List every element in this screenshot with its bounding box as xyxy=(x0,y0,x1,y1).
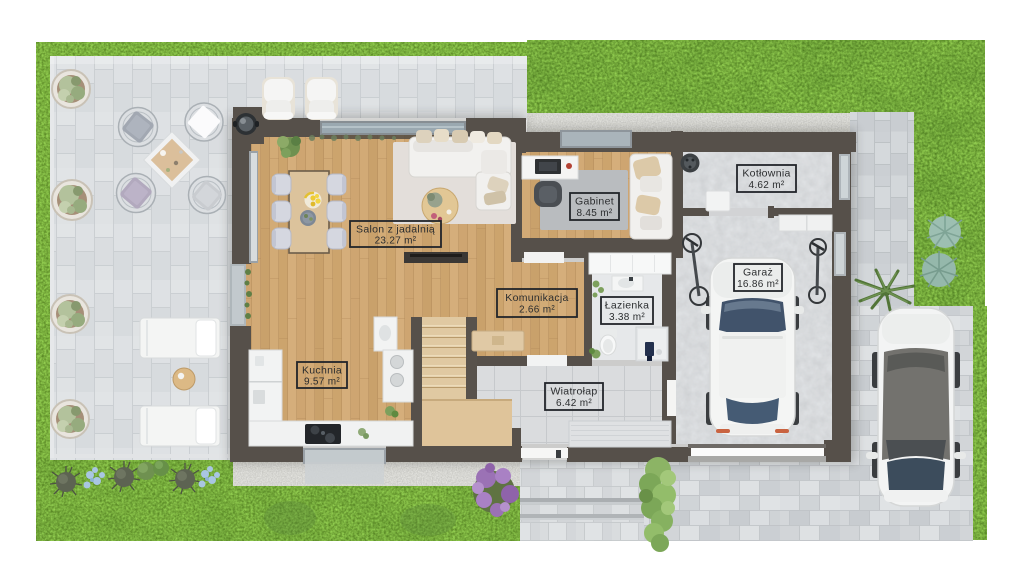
svg-text:8.45 m²: 8.45 m² xyxy=(576,208,612,219)
svg-text:3.38 m²: 3.38 m² xyxy=(609,312,645,323)
svg-text:Garaż: Garaż xyxy=(743,267,773,279)
svg-text:Wiatrołap: Wiatrołap xyxy=(550,386,597,398)
svg-text:2.66 m²: 2.66 m² xyxy=(519,305,555,316)
svg-text:23.27 m²: 23.27 m² xyxy=(375,236,417,247)
svg-text:4.62 m²: 4.62 m² xyxy=(748,180,784,191)
svg-text:9.57 m²: 9.57 m² xyxy=(304,377,340,388)
svg-text:Łazienka: Łazienka xyxy=(605,300,649,312)
svg-text:Kuchnia: Kuchnia xyxy=(302,365,342,377)
svg-text:16.86 m²: 16.86 m² xyxy=(737,279,779,290)
svg-text:Gabinet: Gabinet xyxy=(575,196,614,208)
svg-text:Salon z jadalnią: Salon z jadalnią xyxy=(356,224,435,236)
svg-text:Komunikacja: Komunikacja xyxy=(505,292,568,304)
svg-text:6.42 m²: 6.42 m² xyxy=(556,398,592,409)
svg-text:Kotłownia: Kotłownia xyxy=(742,168,790,180)
